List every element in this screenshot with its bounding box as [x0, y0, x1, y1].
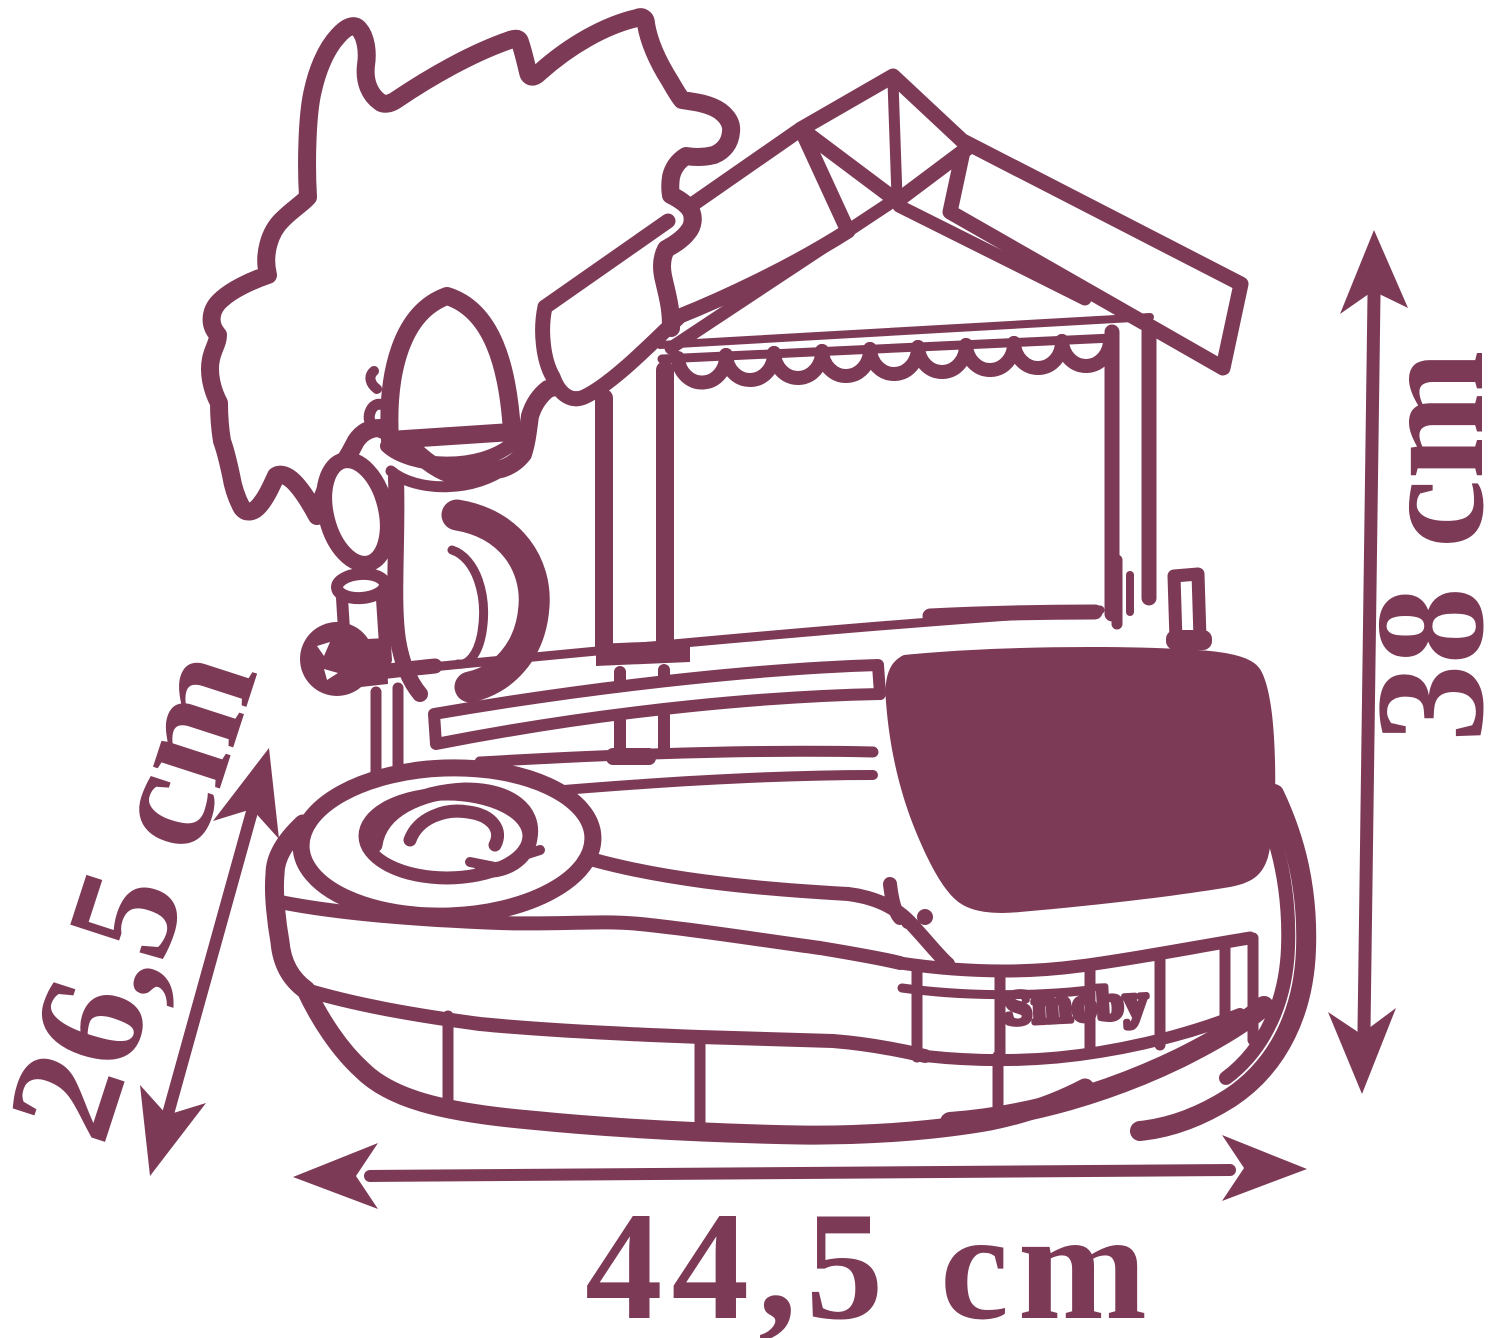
- svg-text:38 cm: 38 cm: [1344, 350, 1500, 742]
- svg-text:44,5 cm: 44,5 cm: [585, 1180, 1156, 1338]
- svg-text:Smoby: Smoby: [1004, 976, 1150, 1035]
- svg-text:26,5 cm: 26,5 cm: [0, 629, 290, 1158]
